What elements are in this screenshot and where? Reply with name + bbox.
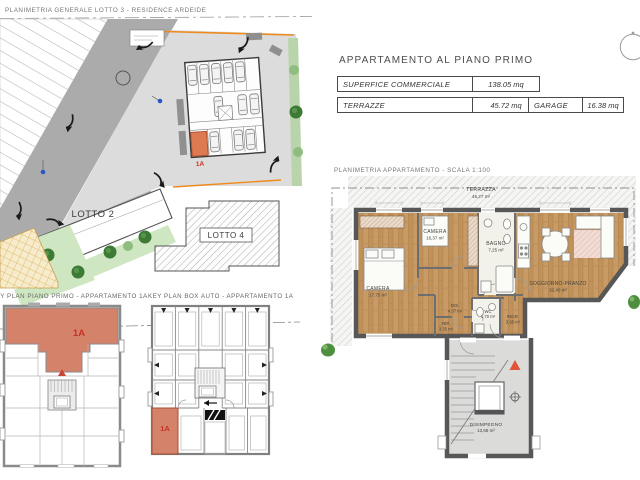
toilet	[503, 219, 510, 229]
wardrobe	[360, 216, 404, 228]
rip-name: RIP.	[442, 321, 450, 326]
bagno-name: BAGNO	[486, 241, 506, 247]
terrace-table-row: TERRAZZE 45.72 mq	[337, 97, 540, 113]
title-separator	[0, 17, 312, 19]
kitchen-sink	[520, 224, 527, 231]
washer	[481, 281, 491, 292]
garage-label: GARAGE	[529, 98, 582, 112]
bagno-area: 7,25 m²	[488, 248, 504, 253]
camera-large-area: 17,75 m²	[369, 293, 387, 298]
floorplan-sheet: { "header": { "title": "APPARTAMENTO AL …	[0, 0, 640, 480]
keyplan-floor-title: KEY PLAN PIANO PRIMO - APPARTAMENTO 1A	[0, 293, 148, 300]
window-gaps	[20, 465, 108, 468]
sheet-title: APPARTAMENTO AL PIANO PRIMO	[339, 55, 533, 66]
terrace-label: TERRAZZE	[338, 98, 472, 112]
boiler	[475, 324, 484, 333]
garage-stair-core	[195, 368, 225, 398]
north-indicator-icon	[616, 28, 640, 68]
dis-area: 4,37 m²	[448, 309, 463, 314]
apartment-plan-title: PLANIMETRIA APPARTAMENTO - SCALA 1:100	[334, 167, 490, 174]
roof-ticks	[28, 303, 100, 307]
surface-value: 138.05 mq	[472, 77, 539, 91]
keyplan-garage-title: KEY PLAN BOX AUTO - APPARTAMENTO 1A	[148, 293, 294, 300]
soggiorno-area: 32,40 m²	[549, 288, 567, 293]
lotto4-building: LOTTO 4	[155, 201, 279, 271]
rip-area: 3,35 m²	[439, 327, 454, 332]
terrazza-area: 46,27 m²	[472, 194, 491, 199]
stove	[519, 244, 529, 258]
surface-label: SUPERFICE COMMERCIALE	[338, 77, 472, 91]
soggiorno-name: SOGGIORNO-PRANZO	[529, 281, 586, 287]
wardrobe	[468, 216, 478, 266]
site-plan-title: PLANIMETRIA GENERALE LOTTO 3 - RESIDENCE…	[5, 7, 206, 14]
dis-name: DIS.	[451, 303, 460, 308]
garage-table-row: GARAGE 16.38 mq	[528, 97, 624, 113]
site-plan-panel: PLANIMETRIA GENERALE LOTTO 3 - RESIDENCE…	[0, 0, 312, 332]
ingr-name: INGR.	[507, 314, 519, 319]
sofa	[601, 216, 614, 258]
ingr-area: 3,95 m²	[506, 320, 521, 325]
camera-small-area: 16,37 m²	[426, 236, 444, 241]
lotto2-label: LOTTO 2	[72, 209, 115, 220]
keyplan-floor-panel: KEY PLAN PIANO PRIMO - APPARTAMENTO 1A 1…	[0, 288, 155, 480]
bathtub	[496, 266, 513, 292]
stair-core	[48, 380, 76, 410]
surface-table-row: SUPERFICE COMMERCIALE 138.05 mq	[337, 76, 540, 92]
apartment-unit-label: 1A	[73, 328, 85, 339]
keyplan-garage-panel: KEY PLAN BOX AUTO - APPARTAMENTO 1A	[138, 288, 303, 480]
camera-small-name: CAMERA	[423, 229, 447, 235]
parking-stall-label: 1A	[196, 161, 205, 169]
camera-large-name: CAMERA	[366, 286, 390, 292]
terrazza-name: TERRAZZA	[466, 187, 496, 193]
garage-unit-label: 1A	[160, 424, 170, 433]
highlighted-parking-stall-1a	[191, 131, 209, 156]
disimpegno-area: 13,68 m²	[477, 428, 495, 433]
lotto4-label: LOTTO 4	[208, 231, 245, 240]
garage-value: 16.38 mq	[582, 98, 623, 112]
wc-area: 1,70 m²	[481, 314, 496, 319]
entrance-kiosk	[130, 30, 164, 46]
washbasin	[484, 219, 492, 227]
apartment-plan-panel: PLANIMETRIA APPARTAMENTO - SCALA 1:100	[318, 160, 640, 480]
